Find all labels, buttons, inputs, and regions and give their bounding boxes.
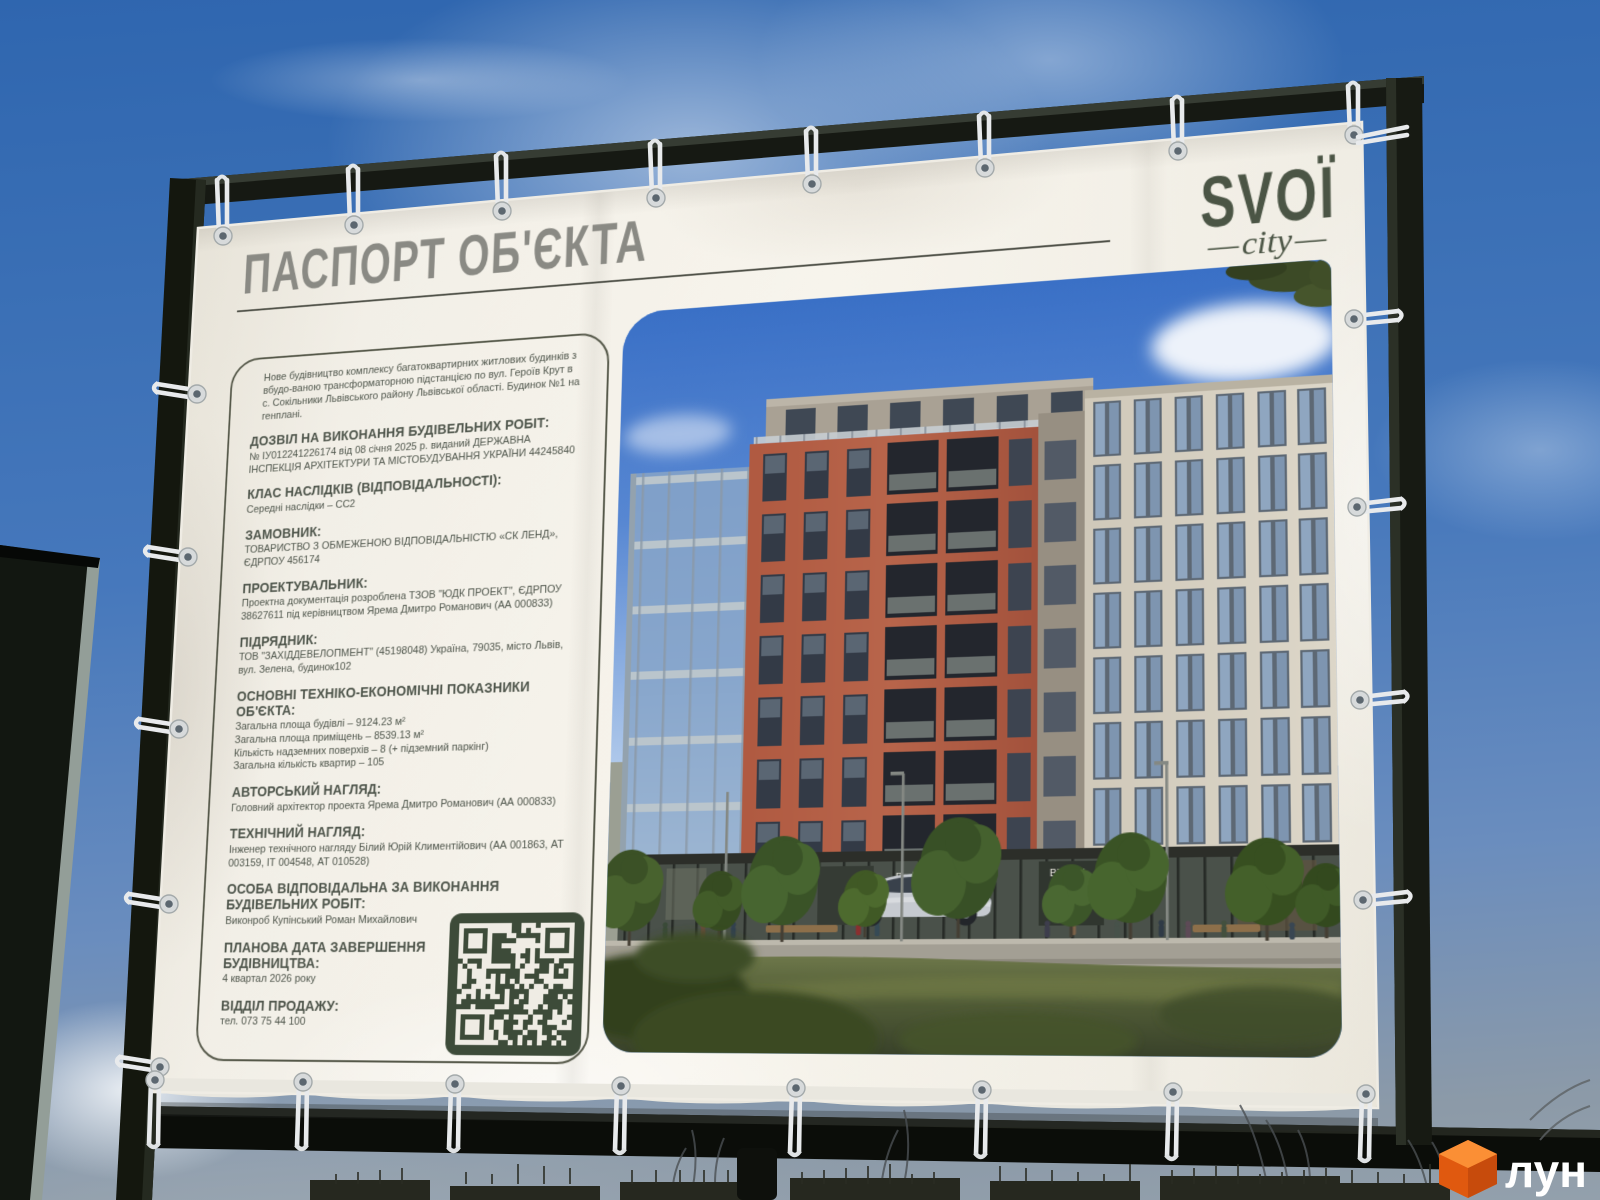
svg-text:лун: лун (1505, 1145, 1587, 1197)
